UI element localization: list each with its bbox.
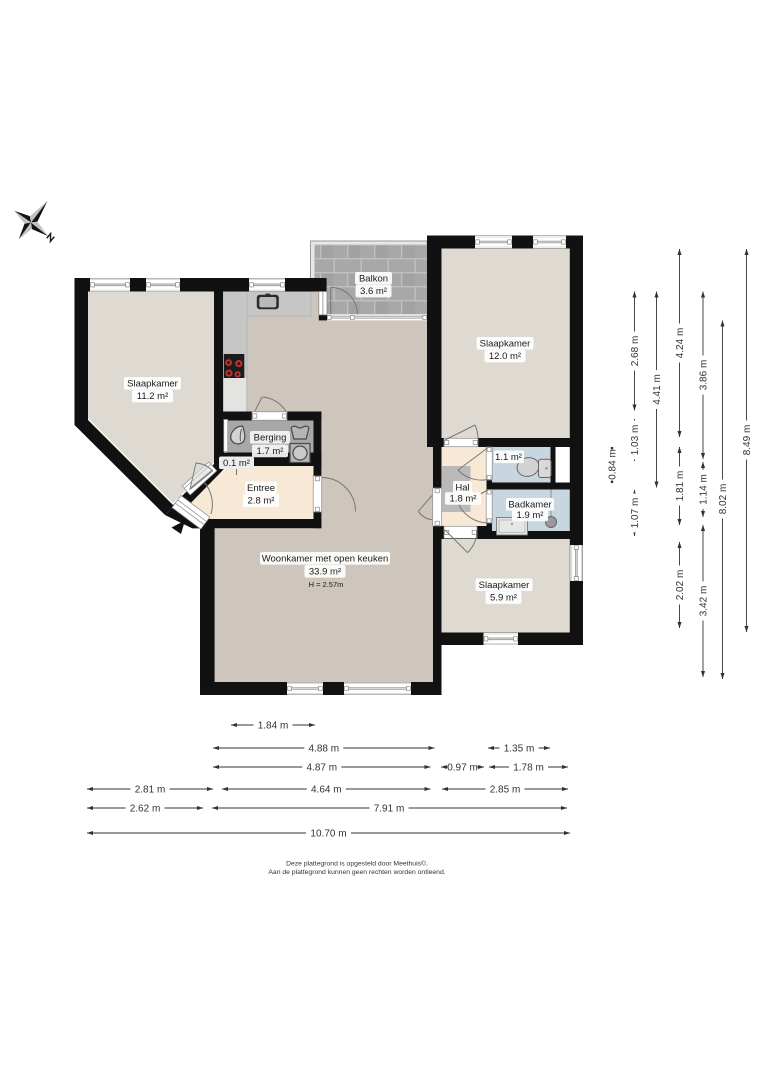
svg-text:Entree: Entree — [247, 483, 275, 494]
svg-text:4.41 m: 4.41 m — [652, 374, 663, 405]
svg-text:3.6 m²: 3.6 m² — [360, 286, 387, 297]
svg-text:Hal: Hal — [455, 482, 469, 493]
svg-text:0.84 m: 0.84 m — [608, 449, 619, 480]
svg-text:4.24 m: 4.24 m — [675, 328, 686, 359]
svg-text:11.2 m²: 11.2 m² — [137, 391, 169, 402]
svg-text:33.9 m²: 33.9 m² — [309, 566, 341, 577]
svg-text:3.86 m: 3.86 m — [699, 360, 710, 391]
svg-text:Aan de plattegrond kunnen geen: Aan de plattegrond kunnen geen rechten w… — [268, 869, 445, 876]
svg-text:7.91 m: 7.91 m — [374, 804, 405, 815]
svg-text:Balkon: Balkon — [359, 273, 388, 284]
svg-text:Slaapkamer: Slaapkamer — [479, 580, 530, 591]
svg-text:Berging: Berging — [254, 432, 287, 443]
svg-text:1.84 m: 1.84 m — [258, 721, 289, 732]
svg-text:1.7 m²: 1.7 m² — [257, 446, 284, 457]
svg-text:3.42 m: 3.42 m — [699, 586, 710, 617]
svg-text:1.78 m: 1.78 m — [513, 763, 544, 774]
svg-text:0.97 m: 0.97 m — [447, 763, 478, 774]
svg-text:1.14 m: 1.14 m — [699, 474, 710, 505]
svg-text:4.64 m: 4.64 m — [311, 785, 342, 796]
svg-text:8.49 m: 8.49 m — [742, 425, 753, 456]
svg-text:1.9 m²: 1.9 m² — [517, 510, 544, 521]
svg-text:1.8 m²: 1.8 m² — [450, 494, 477, 505]
svg-text:2.62 m: 2.62 m — [130, 804, 161, 815]
svg-text:Woonkamer met open keuken: Woonkamer met open keuken — [262, 553, 389, 564]
svg-text:Badkamer: Badkamer — [508, 499, 551, 510]
svg-text:2.02 m: 2.02 m — [675, 570, 686, 601]
svg-text:2.8 m²: 2.8 m² — [248, 496, 275, 507]
svg-text:1.03 m: 1.03 m — [630, 425, 641, 456]
svg-text:0.1 m²: 0.1 m² — [223, 458, 250, 469]
svg-text:5.9 m²: 5.9 m² — [490, 593, 517, 604]
svg-text:H = 2.57m: H = 2.57m — [309, 580, 344, 589]
svg-text:2.81 m: 2.81 m — [135, 785, 166, 796]
svg-text:8.02 m: 8.02 m — [718, 484, 729, 515]
svg-text:2.68 m: 2.68 m — [630, 336, 641, 367]
svg-text:Slaapkamer: Slaapkamer — [127, 378, 178, 389]
svg-text:1.07 m: 1.07 m — [630, 498, 641, 529]
svg-text:Slaapkamer: Slaapkamer — [480, 338, 531, 349]
svg-text:2.85 m: 2.85 m — [490, 785, 521, 796]
svg-text:10.70 m: 10.70 m — [310, 829, 346, 840]
svg-text:4.87 m: 4.87 m — [307, 763, 338, 774]
svg-text:12.0 m²: 12.0 m² — [489, 351, 521, 362]
svg-text:Deze plattegrond is opgesteld: Deze plattegrond is opgesteld door Meeth… — [286, 860, 428, 868]
svg-text:1.1 m²: 1.1 m² — [495, 452, 522, 463]
svg-text:4.88 m: 4.88 m — [309, 744, 340, 755]
svg-text:1.81 m: 1.81 m — [675, 471, 686, 502]
svg-text:1.35 m: 1.35 m — [504, 744, 535, 755]
